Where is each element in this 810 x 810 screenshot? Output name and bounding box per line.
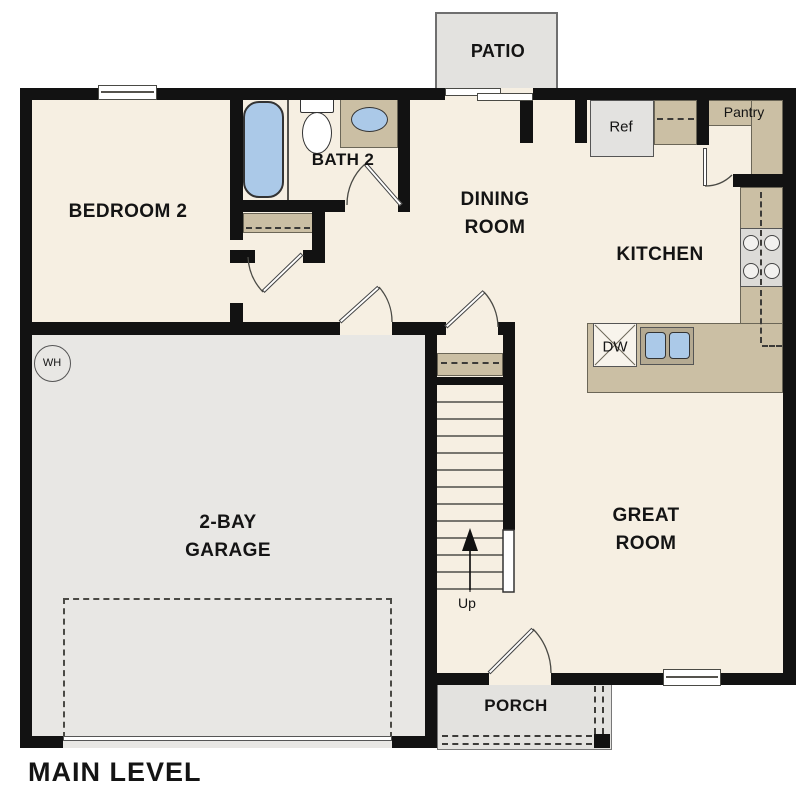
porch-edge-line-2 [442,743,592,745]
vanity-sink [351,107,388,132]
porch-edge-line-4 [602,686,604,734]
stairs-up-label: Up [458,595,476,611]
water-heater-label: WH [43,357,61,369]
tub-partition [287,100,289,200]
garage-label-line2: GARAGE [185,537,271,565]
garage-door-panel [63,736,392,741]
wall-stair-closet-bottom [437,377,503,385]
kitchen-sink-basin-right [669,332,690,359]
burner-3 [743,263,759,279]
garage-label: 2-BAY GARAGE [185,509,271,565]
greatroom-window-line [666,676,718,678]
wall-kitchen-stub-left [575,100,587,143]
burner-2 [764,235,780,251]
wall-top-2 [157,88,445,100]
great-label-line1: GREAT [612,502,679,530]
dining-room-label: DINING ROOM [461,186,530,242]
patio-label: PATIO [471,37,525,65]
counter-centerline-1 [760,192,762,226]
wall-stair-right [503,322,515,530]
dishwasher-label: DW [603,339,628,356]
wall-closet-bottom-left [230,250,255,263]
bedroom2-label: BEDROOM 2 [69,198,188,226]
burner-1 [743,235,759,251]
wall-hall-bottom-2 [392,322,446,335]
wall-bottom-2 [551,673,663,685]
counter-centerline-3 [762,345,782,347]
pantry-door [703,148,707,186]
wall-dining-stub [520,100,533,143]
burner-4 [764,263,780,279]
porch-edge-line-1 [442,735,592,737]
stove-centerline [760,230,762,285]
wall-kitchen-stub-right [697,88,709,145]
pantry-label: Pantry [724,104,764,120]
counter-centerline-2 [760,290,762,343]
garage-door-outline [63,598,392,738]
wall-garage-right [425,322,437,748]
porch-post [594,734,610,748]
bathtub [243,101,284,198]
kitchen-counter-side [654,100,697,145]
wall-closet-right [312,212,325,263]
stair-closet-shelf [437,353,503,376]
stair-closet-rod [441,362,499,364]
kitchen-label: KITCHEN [616,241,703,269]
floor-plan: PATIO BEDROOM 2 BATH 2 DINING ROOM KITCH… [0,0,810,810]
plan-title: MAIN LEVEL [28,757,202,788]
bedroom-closet-shelf [243,213,313,233]
great-label-line2: ROOM [612,530,679,558]
dining-label-line1: DINING [461,186,530,214]
kitchen-sink-basin-left [645,332,666,359]
wall-left [20,88,32,748]
refrigerator-label: Ref [609,119,632,136]
wall-bedroom-upper [230,100,243,240]
bedroom-window [98,85,157,100]
bath2-label: BATH 2 [312,146,375,174]
wall-hall-bottom-1 [20,322,340,335]
wall-bath-bottom [230,200,345,212]
wall-top-3 [533,88,796,100]
wall-right [783,88,796,685]
bedroom-closet-rod [246,227,310,229]
wall-pantry-bottom [733,174,783,187]
garage-label-line1: 2-BAY [185,509,271,537]
patio-slider-panel-2 [477,93,533,101]
dining-label-line2: ROOM [461,214,530,242]
great-room-label: GREAT ROOM [612,502,679,558]
bedroom-window-line [101,91,153,93]
wall-bottom-3 [721,673,796,685]
wall-bath-right [398,100,410,212]
greatroom-window [663,669,721,686]
front-door-threshold [489,673,551,685]
porch-edge-line-3 [594,686,596,734]
porch-label: PORCH [484,692,547,720]
wall-garage-corner-left [20,736,63,748]
kitchen-counter-side-line [657,118,694,120]
